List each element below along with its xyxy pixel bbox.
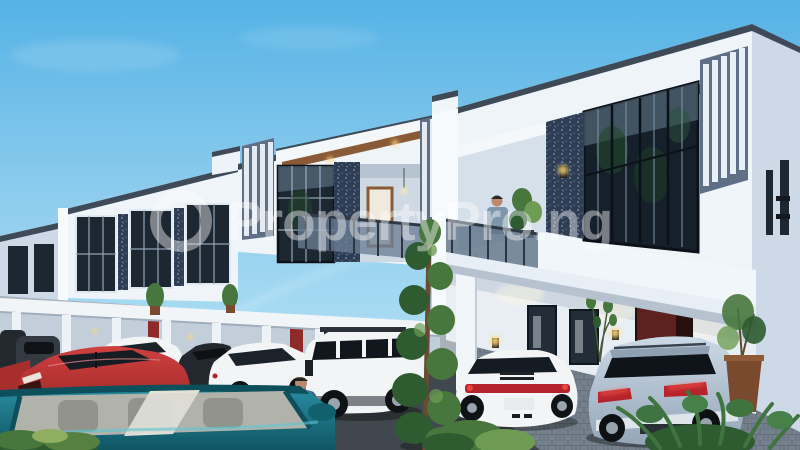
badge	[213, 374, 218, 379]
downlight	[327, 157, 333, 163]
side-mirror	[308, 403, 336, 421]
grille	[305, 360, 313, 376]
window	[8, 246, 28, 294]
cloud	[10, 39, 180, 71]
mosaic-strip	[118, 214, 128, 290]
downlight	[392, 140, 398, 146]
render-photo: PropertyPro.ng	[0, 0, 800, 450]
cloud	[240, 26, 380, 50]
window	[34, 244, 54, 292]
mosaic-strip	[174, 208, 184, 286]
slit-window	[766, 170, 773, 235]
scene-canvas	[0, 0, 800, 450]
wall-lamp	[93, 329, 98, 334]
wall-lamp	[188, 335, 193, 340]
upper-windows	[76, 204, 230, 292]
fin-screen-left	[242, 138, 274, 240]
grand-window	[584, 82, 698, 252]
taillight-bar	[465, 384, 570, 393]
pendant-light	[401, 188, 407, 194]
fin-screen	[700, 46, 748, 194]
